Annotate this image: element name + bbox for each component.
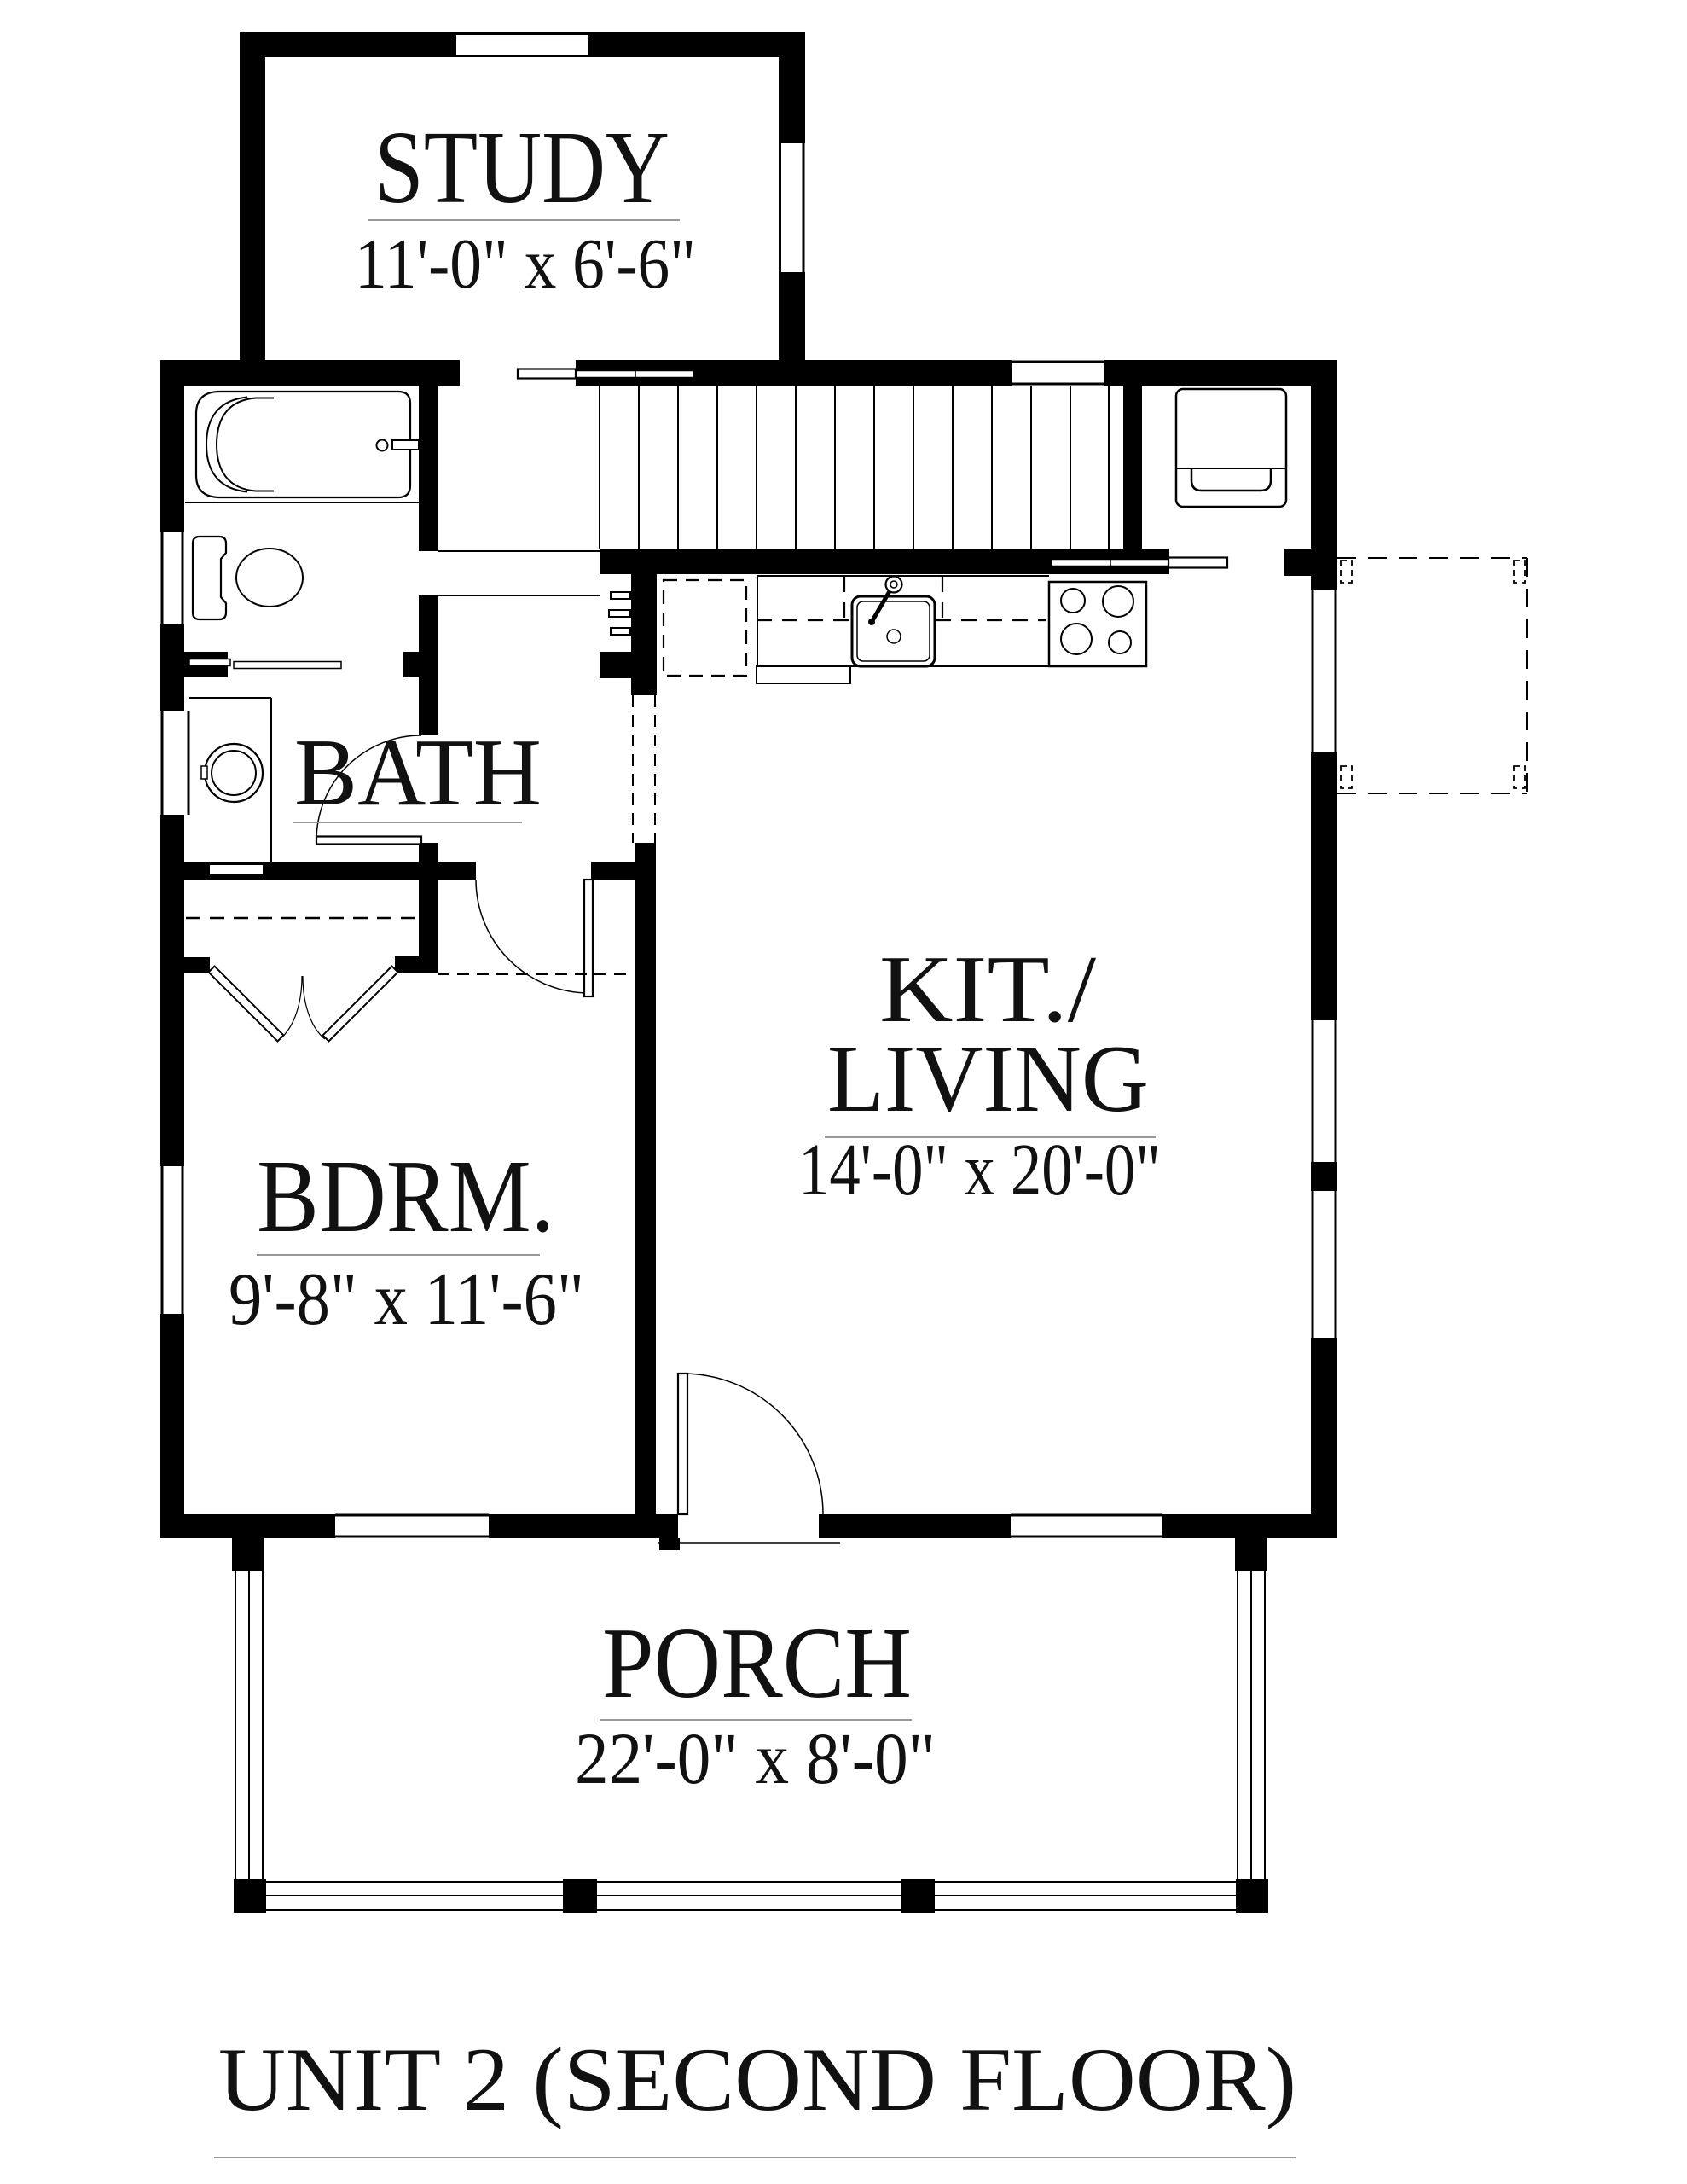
svg-text:11'-0" x 6'-6": 11'-0" x 6'-6" xyxy=(355,224,696,304)
svg-text:LIVING: LIVING xyxy=(827,1026,1149,1132)
svg-text:22'-0" x 8'-0": 22'-0" x 8'-0" xyxy=(575,1717,936,1799)
svg-text:PORCH: PORCH xyxy=(602,1606,912,1719)
svg-text:BATH: BATH xyxy=(294,720,542,826)
svg-text:STUDY: STUDY xyxy=(374,110,670,225)
svg-text:UNIT 2 (SECOND FLOOR): UNIT 2 (SECOND FLOOR) xyxy=(218,2030,1296,2129)
svg-text:9'-8" x 11'-6": 9'-8" x 11'-6" xyxy=(229,1258,584,1341)
svg-text:BDRM.: BDRM. xyxy=(257,1139,554,1254)
svg-text:14'-0" x 20'-0": 14'-0" x 20'-0" xyxy=(798,1128,1161,1211)
